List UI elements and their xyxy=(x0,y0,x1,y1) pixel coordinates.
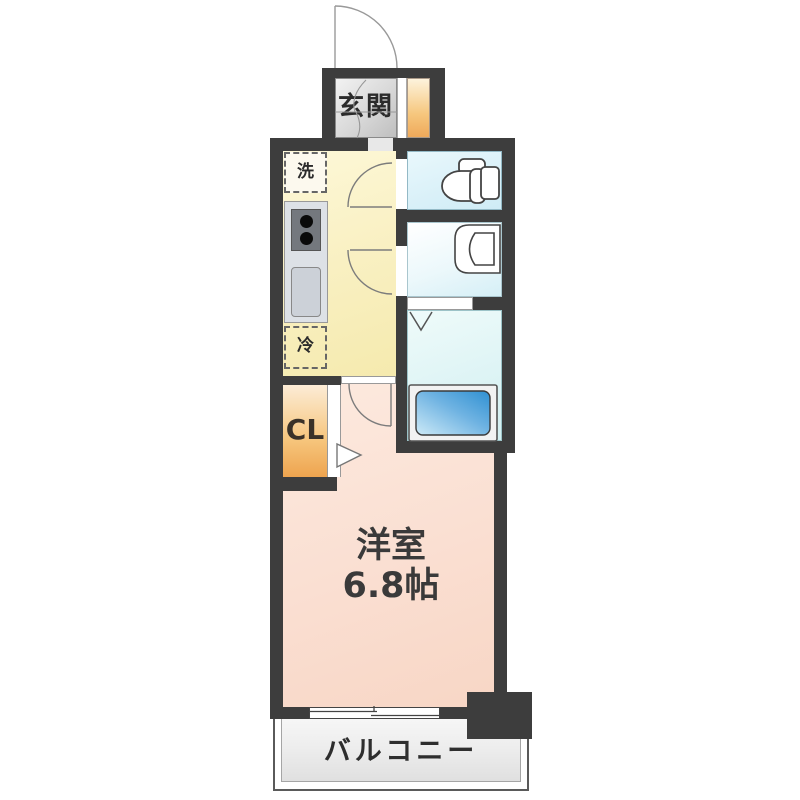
stove-icon xyxy=(291,209,321,251)
main-room-size-label: 6.8帖 xyxy=(298,567,484,606)
main-room-threshold xyxy=(341,376,396,384)
wall-entrance-right xyxy=(430,68,445,138)
sliding-window xyxy=(309,707,440,719)
wall-bottom-right xyxy=(440,707,467,719)
wall-right-upper xyxy=(502,138,515,453)
wall-entrance-top xyxy=(322,68,445,78)
washroom-door-opening xyxy=(396,246,407,296)
fridge-label: 冷 xyxy=(284,337,327,356)
toilet-room-floor xyxy=(407,151,502,210)
shoe-cabinet xyxy=(407,78,430,138)
wall-left xyxy=(270,138,283,719)
toilet-door-opening xyxy=(396,159,407,209)
entrance-door-arc xyxy=(335,6,397,68)
bath-door-threshold xyxy=(407,297,473,310)
entrance-opening xyxy=(368,138,393,151)
bathroom-floor xyxy=(407,310,502,441)
washer-label: 洗 xyxy=(284,163,327,182)
entrance-label: 玄関 xyxy=(333,93,399,122)
wall-washroom-bath xyxy=(473,297,502,310)
balcony-label: バルコニー xyxy=(281,737,521,767)
wall-toilet-washroom xyxy=(407,210,502,222)
wall-closet-bottom xyxy=(270,477,337,491)
closet-front-strip xyxy=(327,385,341,477)
sink-icon xyxy=(291,267,321,317)
wall-bottom-left xyxy=(270,707,309,719)
closet-label: CL xyxy=(283,415,327,446)
stove-burner-icon xyxy=(300,232,313,245)
pillar xyxy=(467,692,532,739)
floor-plan: バルコニー 玄関 洗 冷 CL 洋室 6.8帖 xyxy=(0,0,800,800)
wall-bath-bottom xyxy=(396,441,515,453)
washroom-floor xyxy=(407,222,502,297)
wall-right-lower xyxy=(494,453,507,719)
stove-burner-icon xyxy=(300,215,313,228)
main-room-label: 洋室 xyxy=(298,527,484,566)
